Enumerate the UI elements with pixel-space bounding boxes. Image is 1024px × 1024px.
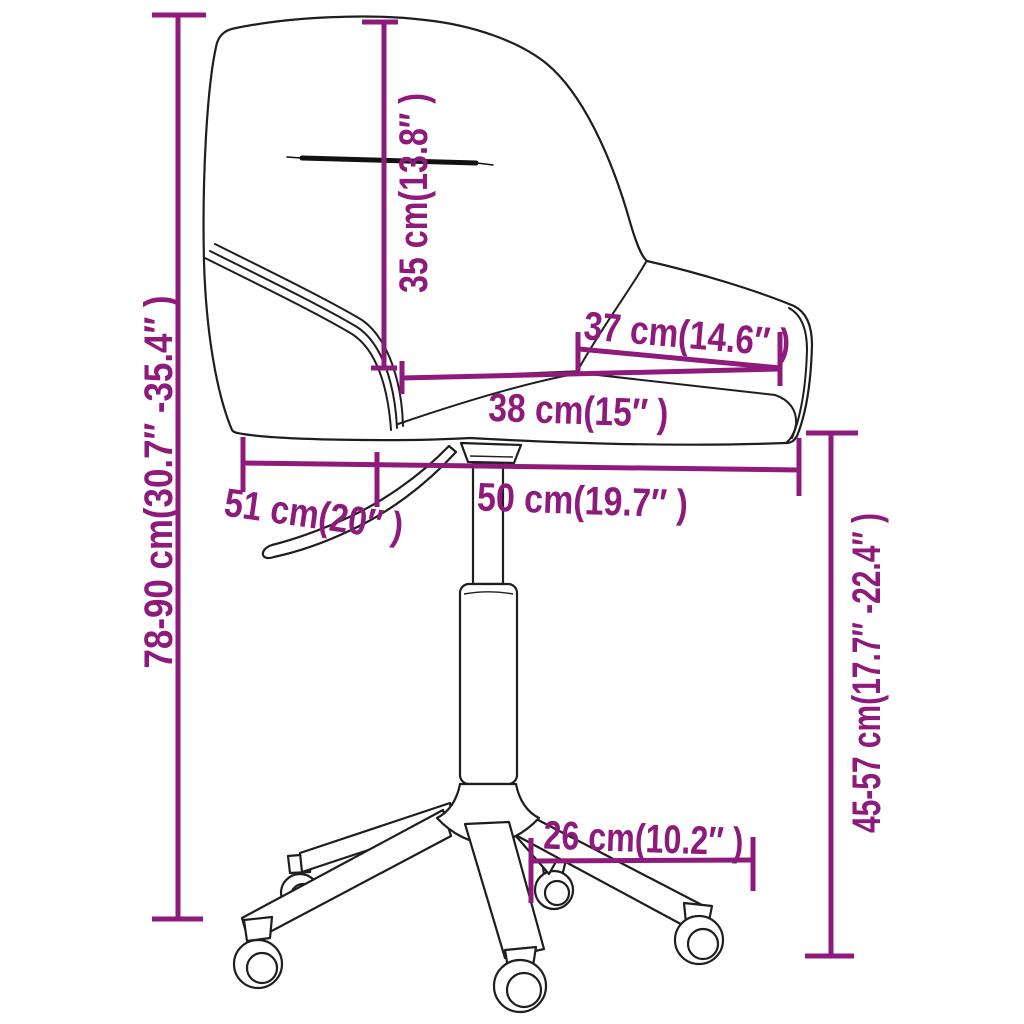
label-backrest-height: 35 cm(13.8″ ) bbox=[392, 93, 436, 293]
label-base-leg: 26 cm(10.2″ ) bbox=[543, 814, 744, 865]
label-overall-width: 50 cm(19.7″ ) bbox=[476, 475, 688, 526]
base-leg-left bbox=[242, 810, 451, 943]
label-overall-height-range: 78-90 cm(30.7″ -35.4″ ) bbox=[137, 296, 181, 669]
label-seat-height-range: 45-57 cm(17.7″ -22.4″ ) bbox=[845, 513, 889, 833]
chair-dimension-drawing: 35 cm(13.8″ ) 37 cm(14.6″ ) 38 cm(15″ ) … bbox=[0, 0, 1024, 1024]
caster-front bbox=[494, 947, 546, 1012]
dimension-diagram: 35 cm(13.8″ ) 37 cm(14.6″ ) 38 cm(15″ ) … bbox=[0, 0, 1024, 1024]
chair-shell-outline bbox=[204, 17, 812, 445]
label-seat-depth: 38 cm(15″ ) bbox=[488, 386, 669, 436]
